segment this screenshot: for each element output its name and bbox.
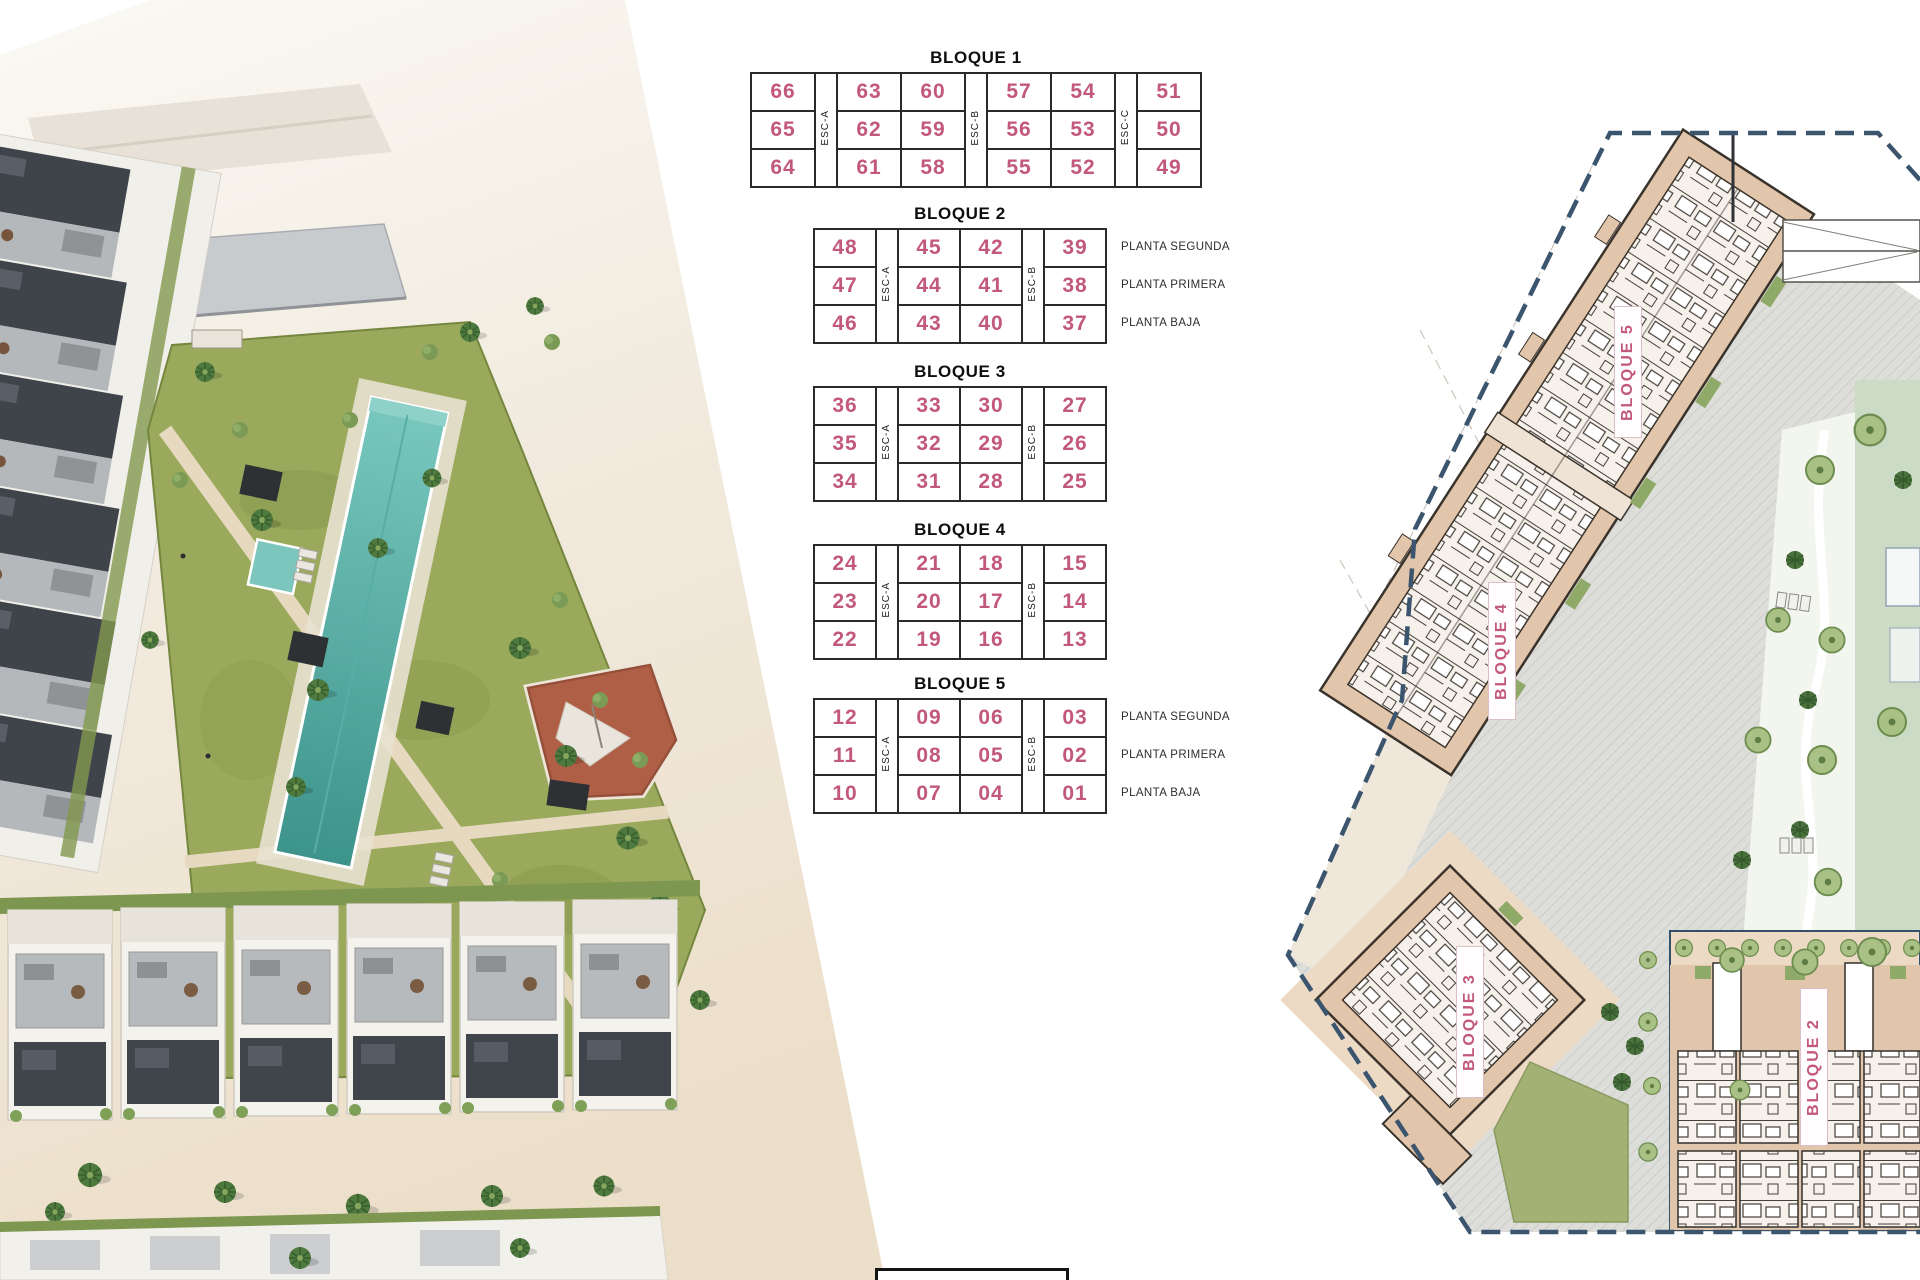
stair-core-cell: ESC-B xyxy=(1022,699,1044,813)
block-title: BLOQUE 5 xyxy=(813,674,1107,694)
unit-cell: 54 xyxy=(1051,73,1115,111)
unit-cell: 15 xyxy=(1044,545,1106,583)
stair-core-cell: ESC-B xyxy=(1022,387,1044,501)
unit-cell: 23 xyxy=(814,583,876,621)
unit-cell: 43 xyxy=(898,305,960,343)
stair-core-label: ESC-A xyxy=(882,736,892,772)
unit-cell: 11 xyxy=(814,737,876,775)
unit-cell: 22 xyxy=(814,621,876,659)
unit-cell: 26 xyxy=(1044,425,1106,463)
unit-cell: 25 xyxy=(1044,463,1106,501)
unit-cell: 62 xyxy=(837,111,901,149)
unit-cell: 59 xyxy=(901,111,965,149)
unit-cell: 07 xyxy=(898,775,960,813)
bloque2-building xyxy=(1670,931,1920,1230)
planta-label: PLANTA SEGUNDA xyxy=(1121,711,1230,723)
stair-core-cell: ESC-B xyxy=(965,73,987,187)
stair-core-label: ESC-A xyxy=(821,110,831,146)
unit-cell: 42 xyxy=(960,229,1022,267)
unit-cell: 10 xyxy=(814,775,876,813)
unit-cell: 44 xyxy=(898,267,960,305)
unit-cell: 29 xyxy=(960,425,1022,463)
unit-cell: 47 xyxy=(814,267,876,305)
unit-cell: 27 xyxy=(1044,387,1106,425)
unit-cell: 52 xyxy=(1051,149,1115,187)
unit-cell: 16 xyxy=(960,621,1022,659)
unit-cell: 12 xyxy=(814,699,876,737)
unit-table: 24ESC-A2118ESC-B152320171422191613 xyxy=(813,544,1107,660)
stair-core-cell: ESC-A xyxy=(876,545,898,659)
stair-core-label: ESC-B xyxy=(1028,582,1038,618)
unit-cell: 03 xyxy=(1044,699,1106,737)
unit-cell: 35 xyxy=(814,425,876,463)
unit-cell: 14 xyxy=(1044,583,1106,621)
unit-cell: 13 xyxy=(1044,621,1106,659)
unit-cell: 65 xyxy=(751,111,815,149)
unit-cell: 57 xyxy=(987,73,1051,111)
plan-label-bloque-4: BLOQUE 4 xyxy=(1488,582,1516,720)
unit-cell: 56 xyxy=(987,111,1051,149)
unit-cell: 24 xyxy=(814,545,876,583)
unit-cell: 33 xyxy=(898,387,960,425)
stair-core-cell: ESC-A xyxy=(876,699,898,813)
unit-cell: 21 xyxy=(898,545,960,583)
unit-cell: 34 xyxy=(814,463,876,501)
unit-table-block: BLOQUE 166ESC-A6360ESC-B5754ESC-C5165625… xyxy=(750,48,1202,188)
jacuzzi-pool xyxy=(248,539,303,594)
unit-cell: 48 xyxy=(814,229,876,267)
unit-cell: 04 xyxy=(960,775,1022,813)
stair-core-cell: ESC-B xyxy=(1022,229,1044,343)
plan-label-bloque-2: BLOQUE 2 xyxy=(1800,988,1828,1146)
unit-cell: 40 xyxy=(960,305,1022,343)
unit-cell: 28 xyxy=(960,463,1022,501)
unit-cell: 64 xyxy=(751,149,815,187)
unit-cell: 20 xyxy=(898,583,960,621)
unit-cell: 19 xyxy=(898,621,960,659)
unit-table: 48ESC-A4542ESC-B394744413846434037 xyxy=(813,228,1107,344)
stair-core-label: ESC-B xyxy=(971,110,981,146)
stair-core-label: ESC-A xyxy=(882,266,892,302)
stair-core-label: ESC-B xyxy=(1028,736,1038,772)
unit-cell: 02 xyxy=(1044,737,1106,775)
stair-core-label: ESC-A xyxy=(882,582,892,618)
unit-cell: 45 xyxy=(898,229,960,267)
garden-pavilion xyxy=(192,330,242,348)
stair-core-label: ESC-A xyxy=(882,424,892,460)
unit-table: 66ESC-A6360ESC-B5754ESC-C516562595653506… xyxy=(750,72,1202,188)
planta-label: PLANTA PRIMERA xyxy=(1121,749,1225,761)
plan-label-bloque-5: BLOQUE 5 xyxy=(1614,306,1642,438)
block-title: BLOQUE 4 xyxy=(813,520,1107,540)
unit-cell: 49 xyxy=(1137,149,1201,187)
stair-core-label: ESC-C xyxy=(1121,109,1131,145)
unit-cell: 46 xyxy=(814,305,876,343)
unit-cell: 32 xyxy=(898,425,960,463)
unit-cell: 36 xyxy=(814,387,876,425)
plan-pool xyxy=(1886,548,1920,606)
planta-label: PLANTA SEGUNDA xyxy=(1121,241,1230,253)
unit-table-block: BLOQUE 424ESC-A2118ESC-B1523201714221916… xyxy=(813,520,1107,660)
aerial-render xyxy=(0,0,900,1280)
unit-cell: 58 xyxy=(901,149,965,187)
stair-core-cell: ESC-C xyxy=(1115,73,1137,187)
planta-label: PLANTA PRIMERA xyxy=(1121,279,1225,291)
unit-cell: 06 xyxy=(960,699,1022,737)
plan-label-bloque-3: BLOQUE 3 xyxy=(1456,946,1484,1098)
unit-cell: 61 xyxy=(837,149,901,187)
unit-table: 12ESC-A0906ESC-B031108050210070401 xyxy=(813,698,1107,814)
stair-core-cell: ESC-A xyxy=(876,387,898,501)
unit-cell: 50 xyxy=(1137,111,1201,149)
unit-cell: 53 xyxy=(1051,111,1115,149)
stair-core-label: ESC-B xyxy=(1028,424,1038,460)
unit-table-block: BLOQUE 248ESC-A4542ESC-B3947444138464340… xyxy=(813,204,1107,344)
unit-cell: 55 xyxy=(987,149,1051,187)
planta-label: PLANTA BAJA xyxy=(1121,317,1201,329)
unit-cell: 30 xyxy=(960,387,1022,425)
unit-cell: 38 xyxy=(1044,267,1106,305)
unit-cell: 39 xyxy=(1044,229,1106,267)
stair-core-cell: ESC-A xyxy=(815,73,837,187)
brochure-page: BLOQUE 166ESC-A6360ESC-B5754ESC-C5165625… xyxy=(0,0,1920,1280)
unit-table: 36ESC-A3330ESC-B273532292634312825 xyxy=(813,386,1107,502)
legend-box xyxy=(875,1268,1069,1280)
unit-cell: 63 xyxy=(837,73,901,111)
stair-core-cell: ESC-A xyxy=(876,229,898,343)
stair-core-label: ESC-B xyxy=(1028,266,1038,302)
unit-cell: 66 xyxy=(751,73,815,111)
unit-table-block: BLOQUE 336ESC-A3330ESC-B2735322926343128… xyxy=(813,362,1107,502)
unit-table-block: BLOQUE 512ESC-A0906ESC-B0311080502100704… xyxy=(813,674,1107,814)
unit-cell: 51 xyxy=(1137,73,1201,111)
block-title: BLOQUE 3 xyxy=(813,362,1107,382)
unit-cell: 41 xyxy=(960,267,1022,305)
planta-label: PLANTA BAJA xyxy=(1121,787,1201,799)
unit-cell: 17 xyxy=(960,583,1022,621)
unit-cell: 31 xyxy=(898,463,960,501)
unit-cell: 09 xyxy=(898,699,960,737)
ramp-structure xyxy=(1783,220,1920,282)
unit-cell: 18 xyxy=(960,545,1022,583)
unit-cell: 01 xyxy=(1044,775,1106,813)
unit-cell: 08 xyxy=(898,737,960,775)
block-title: BLOQUE 1 xyxy=(750,48,1202,68)
stair-core-cell: ESC-B xyxy=(1022,545,1044,659)
unit-cell: 05 xyxy=(960,737,1022,775)
unit-cell: 37 xyxy=(1044,305,1106,343)
unit-cell: 60 xyxy=(901,73,965,111)
block-title: BLOQUE 2 xyxy=(813,204,1107,224)
